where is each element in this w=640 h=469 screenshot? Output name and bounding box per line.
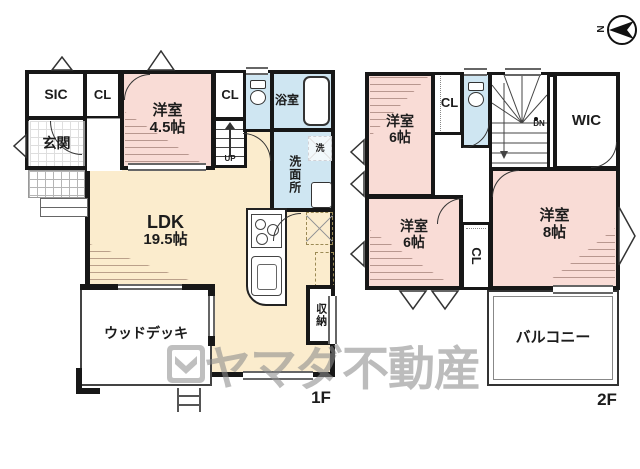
bedroom-sw-window-triangle-b2 (430, 289, 460, 311)
awning-triangle-bedroom45 (146, 50, 176, 72)
stairs-2f-window (505, 68, 541, 76)
balcony-inner-rail (493, 296, 613, 380)
entrance-side-window-triangle (12, 133, 28, 159)
deck-side-window (208, 296, 215, 336)
porch-tile (28, 170, 85, 198)
room-cl-hall (213, 70, 247, 120)
room-cl-2f-bottom (461, 222, 491, 290)
bedroom-sw-window-triangle-b1 (398, 289, 428, 311)
floor2-label: 2F (592, 390, 622, 410)
bedroom-sw-window-triangle-side (349, 240, 366, 268)
awning-triangle-sic (50, 56, 74, 72)
pantry-space (315, 252, 334, 287)
room-sic (25, 70, 87, 120)
ldk-south-window (243, 371, 313, 380)
ldk-east-window (328, 296, 337, 344)
entry-hall (87, 118, 122, 171)
floor1-label: 1F (306, 388, 336, 408)
toilet-2f-window (464, 68, 487, 76)
washroom-sink-icon (311, 182, 332, 208)
corner-wall-h (76, 388, 100, 394)
bedroom45-sliding-door (128, 163, 206, 171)
toilet-icon-2f (468, 82, 484, 107)
kitchen-sink-icon (251, 256, 282, 296)
north-compass-icon: N (596, 8, 640, 50)
cl-bottom-hanger-pole (466, 228, 486, 230)
cl-top-hanger-pole (440, 76, 442, 131)
bedroom-e-window-triangle (617, 205, 637, 267)
bathtub-icon (303, 76, 330, 126)
room-bedroom-nw (365, 72, 435, 198)
stairs-2f-treads (492, 75, 547, 167)
stairs-up-arrow-line (229, 126, 231, 156)
bedroom-e-balcony-window (553, 285, 613, 294)
room-cl-entry (83, 70, 122, 120)
toilet-icon-1f (250, 80, 266, 105)
stairs-up-arrow-head (225, 122, 235, 129)
bedroom-nw-window-triangle-2 (349, 170, 366, 198)
bedroom-nw-window-triangle-1 (349, 138, 366, 166)
room-cl-2f-top (432, 72, 463, 135)
deck-window (118, 284, 182, 290)
floor-plan-canvas: SIC 玄関 CL 洋室 4.5帖 CL UP 浴室 洗面所 洗 収納 (0, 0, 640, 469)
refrigerator-space (306, 212, 333, 245)
deck-step-ladder (177, 388, 201, 412)
balcony (487, 290, 619, 386)
toilet-window (246, 67, 268, 75)
watermark-logo (166, 344, 206, 384)
porch-step-2 (40, 207, 88, 217)
washer-box (308, 136, 332, 161)
